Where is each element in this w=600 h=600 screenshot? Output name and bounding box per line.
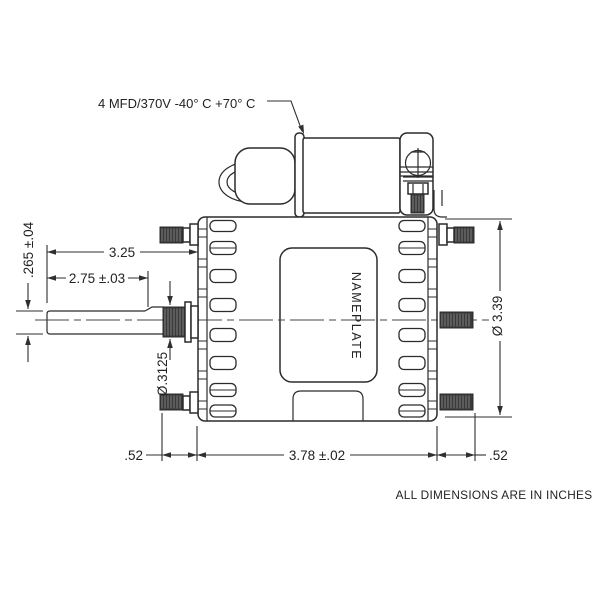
capacitor-label: 4 MFD/370V -40° C +70° C (98, 96, 255, 111)
dim-shaft-hub-diameter: Ø.3125 (155, 352, 170, 396)
dim-body-diameter: Ø 3.39 (490, 296, 505, 337)
clamp-screw-nut (408, 183, 428, 194)
dim-stud-left: .52 (124, 448, 143, 463)
nameplate-label: NAMEPLATE (349, 272, 363, 360)
motor-drawing: 4 MFD/370V -40° C +70° C 3.25 2.75 ±.03 … (0, 0, 600, 600)
threaded-stud (160, 227, 183, 243)
leader-line (267, 101, 304, 134)
dim-body-length: 3.78 ±.02 (289, 448, 345, 463)
dim-shaft-overall: 3.25 (109, 245, 135, 260)
dim-shaft-exposed: 2.75 ±.03 (69, 271, 125, 286)
engineering-drawing-canvas: 4 MFD/370V -40° C +70° C 3.25 2.75 ±.03 … (0, 0, 600, 600)
capacitor-end-cap (235, 148, 295, 204)
units-note: ALL DIMENSIONS ARE IN INCHES (396, 488, 593, 502)
clamp-foot (434, 190, 447, 217)
dim-stud-right: .52 (489, 448, 508, 463)
capacitor-body (303, 138, 400, 213)
dim-shaft-end-diameter: .265 ±.04 (21, 221, 36, 278)
